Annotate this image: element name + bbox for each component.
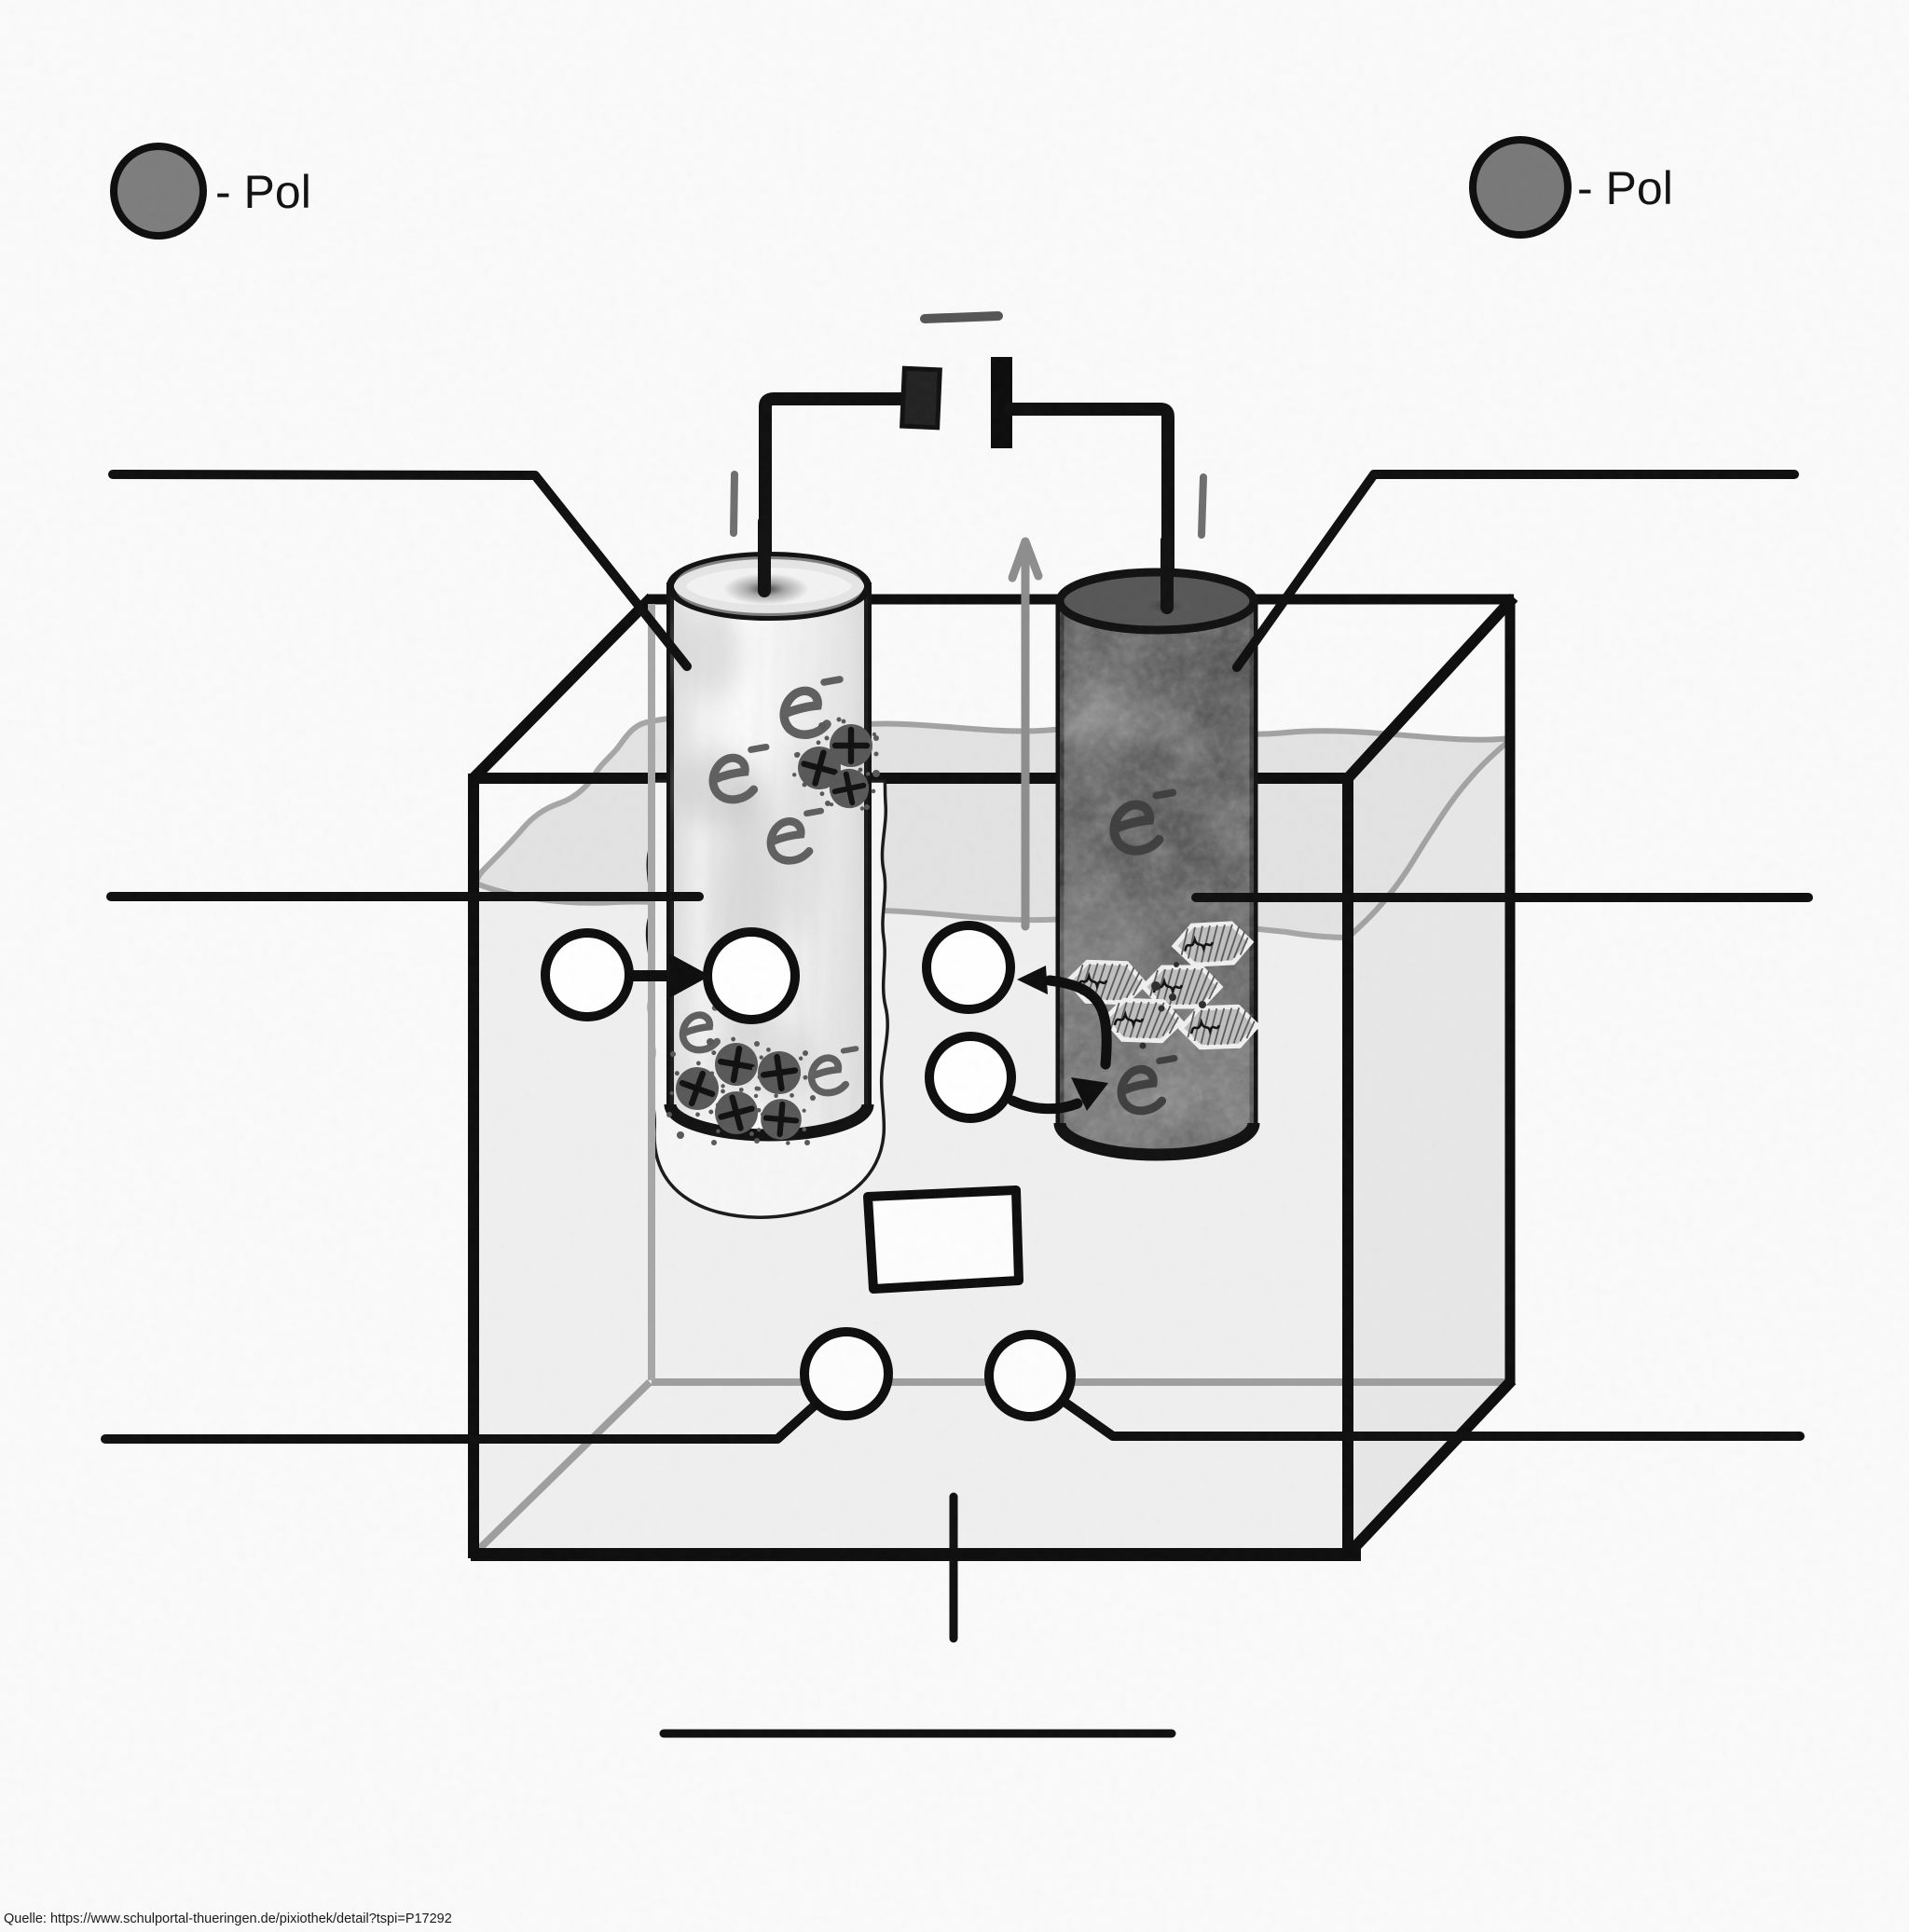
svg-text:Quelle: https://www.schulporta: Quelle: https://www.schulportal-thuering… <box>4 1911 452 1926</box>
